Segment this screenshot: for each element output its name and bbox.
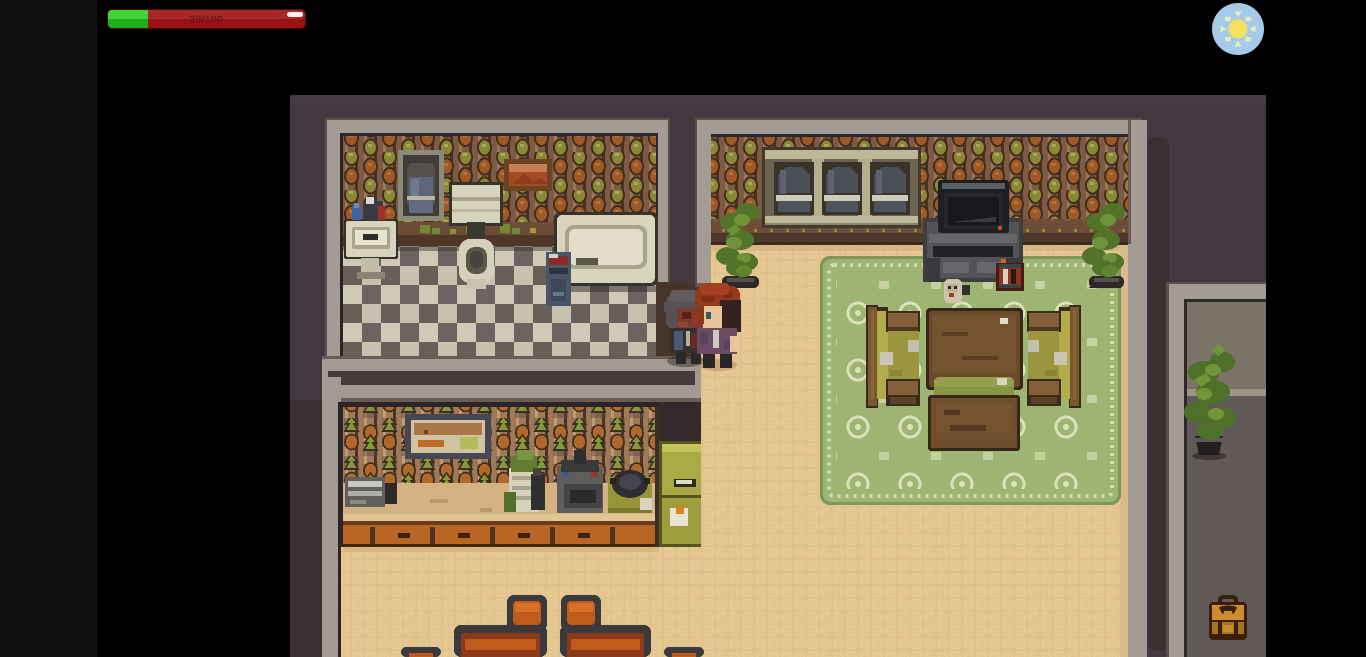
svg-text:20/100: 20/100 (189, 14, 223, 26)
